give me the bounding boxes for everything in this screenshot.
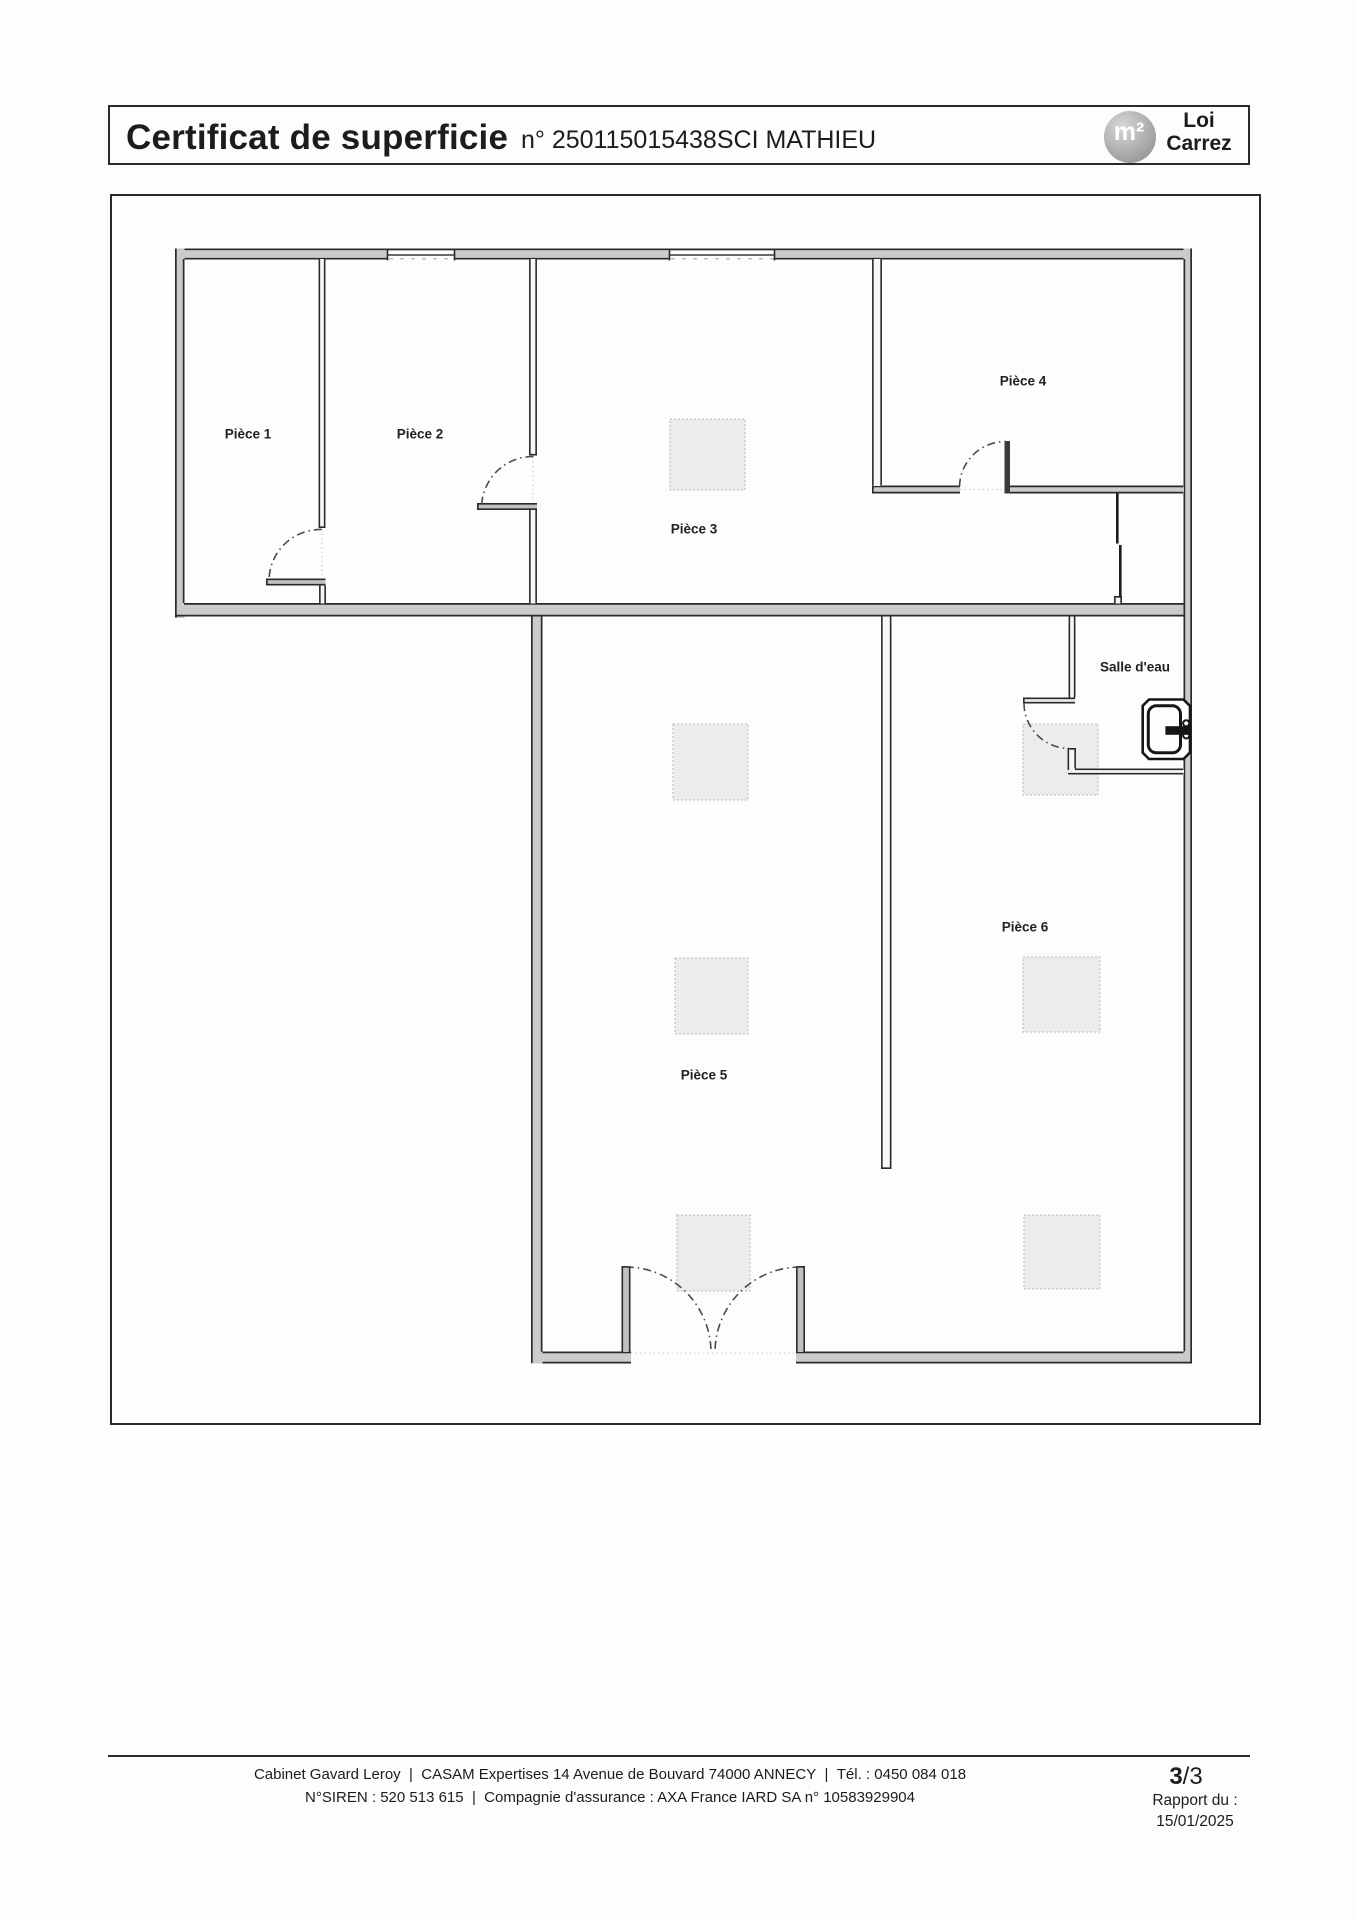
svg-text:Pièce 2: Pièce 2 bbox=[397, 427, 444, 442]
svg-text:Pièce 3: Pièce 3 bbox=[671, 522, 718, 537]
svg-text:Pièce 6: Pièce 6 bbox=[1002, 920, 1049, 935]
svg-text:Pièce 5: Pièce 5 bbox=[681, 1068, 728, 1083]
svg-text:Pièce 1: Pièce 1 bbox=[225, 427, 272, 442]
svg-text:Salle d'eau: Salle d'eau bbox=[1100, 660, 1170, 675]
svg-text:Pièce 4: Pièce 4 bbox=[1000, 374, 1047, 389]
